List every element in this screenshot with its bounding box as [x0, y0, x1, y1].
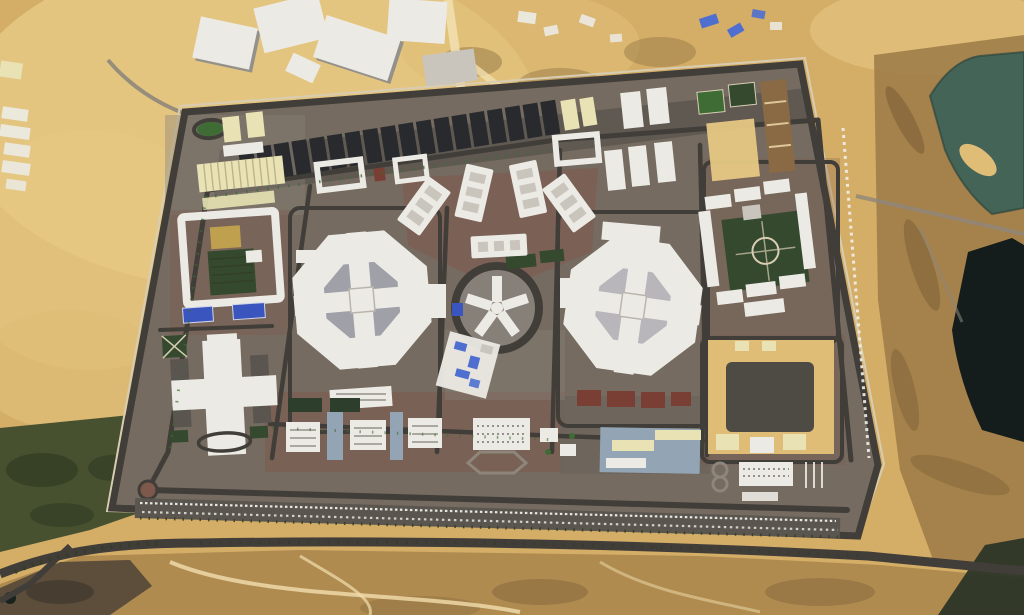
green-court [288, 398, 322, 412]
red-roof-building [607, 391, 635, 407]
depot-hall [739, 462, 793, 486]
walled-compound [107, 58, 884, 537]
window-grid [510, 240, 521, 251]
window-grid [478, 242, 489, 253]
lawn-plot [250, 426, 269, 439]
octagon-east-hub [619, 292, 646, 319]
cross-head [207, 333, 238, 351]
red-roof-building [641, 392, 665, 408]
sports-court [232, 303, 265, 320]
satellite-image [0, 0, 1024, 615]
satellite-map [0, 0, 1024, 615]
parade-building [716, 434, 739, 450]
red-roof-building [671, 392, 691, 406]
small-building [0, 61, 23, 80]
shed [610, 33, 623, 42]
scrub-blotch [6, 453, 78, 487]
tree [569, 433, 575, 439]
green-court [330, 398, 360, 412]
shade-canopy [390, 412, 403, 460]
pavilion [408, 418, 442, 448]
parade-ground [708, 340, 834, 454]
workshop-block [246, 111, 266, 138]
red-roof-building [577, 390, 601, 406]
small-building [560, 444, 576, 456]
shed [770, 22, 782, 30]
nw-entrance [193, 119, 226, 140]
annex-block [296, 250, 316, 263]
parade-building [750, 437, 774, 453]
cross-wing [171, 375, 277, 410]
tree [545, 449, 551, 455]
shade-canopy [327, 412, 343, 460]
small-building [540, 428, 558, 442]
window-grid [494, 241, 505, 252]
parade-asphalt-pad [726, 362, 814, 432]
desert-blotch [765, 578, 875, 606]
parade-building [762, 341, 776, 351]
parade-building [783, 434, 806, 450]
northeast-lawns [696, 79, 795, 182]
courtyard-annex [246, 250, 263, 263]
yard-building [612, 440, 654, 451]
radial-wing [492, 276, 502, 302]
scrub-blotch [30, 503, 94, 527]
gold-roof-building [210, 225, 241, 249]
pavilion [350, 420, 386, 450]
sand-yard [706, 119, 760, 182]
yard-building [606, 458, 646, 468]
bus-shelter [742, 492, 778, 501]
dirt-pile [624, 37, 696, 67]
housing-block [742, 204, 762, 220]
lawn-plot [697, 90, 725, 115]
blue-court-west-of-hub [452, 303, 463, 316]
rock-blotch [26, 580, 94, 604]
red-roof-row [577, 390, 691, 408]
dotted-hall [473, 418, 530, 450]
slab-building [646, 87, 670, 125]
lawn-plot [728, 82, 756, 107]
pavilion [286, 422, 320, 452]
sports-court [183, 306, 214, 323]
roundabout-southwest [139, 481, 157, 499]
lawn-northeast-of-hub [539, 249, 564, 263]
annex-block [560, 278, 576, 308]
workshop-block [222, 116, 242, 143]
desert-blotch [492, 579, 588, 605]
yard-building [655, 430, 701, 440]
roundabout [139, 481, 157, 499]
red-roof-building [373, 167, 386, 181]
octagon-west-hub [349, 287, 375, 313]
slab-building [620, 91, 644, 129]
annex-block [424, 284, 446, 318]
construction-building [387, 0, 448, 44]
parade-building [735, 341, 749, 351]
